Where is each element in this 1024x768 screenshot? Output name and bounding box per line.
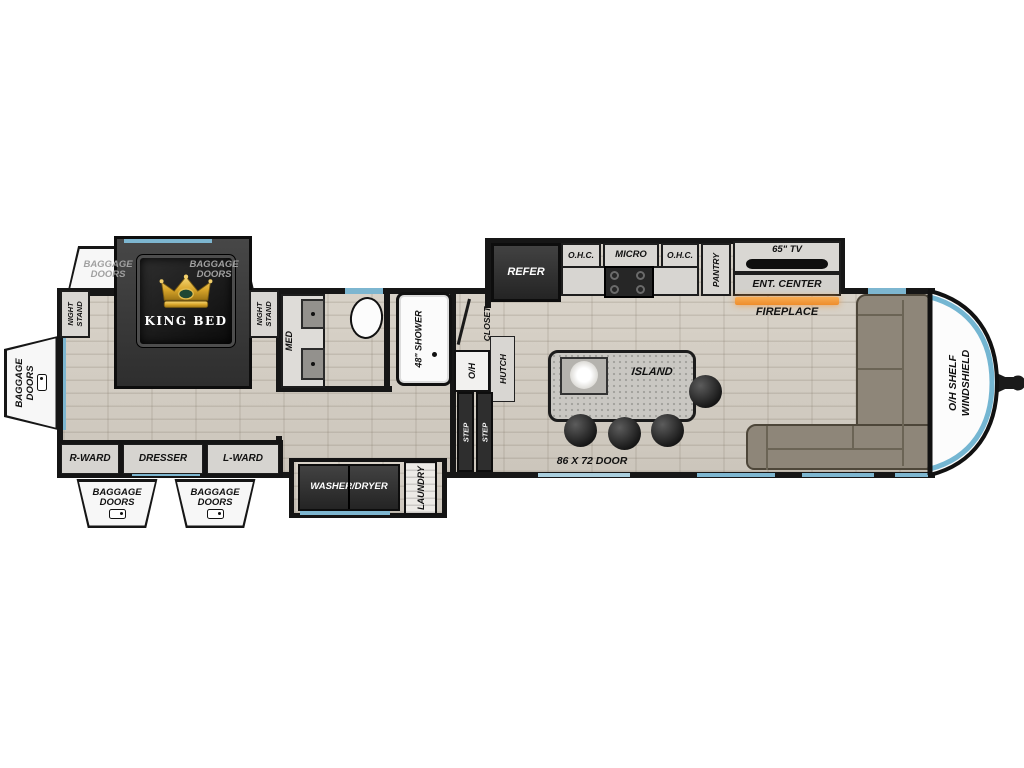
island-sink-basin xyxy=(570,361,598,389)
med-label: MED xyxy=(279,316,299,366)
baggage-doors-panel-side: BAGGAGE DOORS xyxy=(4,333,58,433)
entry-door-opening xyxy=(538,473,630,477)
hutch-label: HUTCH xyxy=(490,336,515,402)
night-stand-left-label: NIGHT STAND xyxy=(60,290,90,338)
baggage-doors-side-label: BAGGAGE DOORS xyxy=(15,352,36,414)
dresser: DRESSER xyxy=(123,444,203,474)
step-2-label: STEP xyxy=(476,392,493,472)
l-ward: L-WARD xyxy=(207,444,279,474)
ohc-left: O.H.C. xyxy=(561,243,601,268)
baggage-doors-bottom-right-label: BAGGAGE DOORS xyxy=(185,488,245,509)
step-1-label: STEP xyxy=(457,392,474,472)
sofa-seam xyxy=(858,314,904,316)
r-ward: R-WARD xyxy=(61,444,119,474)
shower-label: 48" SHOWER xyxy=(396,292,442,386)
fireplace-label: FIREPLACE xyxy=(735,306,839,319)
island-label: ISLAND xyxy=(611,366,692,380)
baggage-door-icon xyxy=(109,509,126,519)
microwave: MICRO xyxy=(603,243,659,268)
tv-label: 65" TV xyxy=(733,244,841,256)
laundry-slide-edge xyxy=(300,511,390,515)
fireplace xyxy=(735,297,839,305)
island-stool xyxy=(689,375,722,408)
sofa-seam xyxy=(852,426,854,448)
entertainment-center: ENT. CENTER xyxy=(733,273,841,296)
window-bottom-3 xyxy=(802,473,874,477)
sofa-seam xyxy=(766,426,768,470)
king-bed-label: KING BED xyxy=(144,315,227,328)
baggage-doors-panel-bottom-right: BAGGAGE DOORS xyxy=(172,479,258,528)
island-stool xyxy=(564,414,597,447)
burner-icon xyxy=(636,285,645,294)
baggage-door-icon xyxy=(207,509,224,519)
washer-dryer-divider xyxy=(348,466,350,509)
baggage-door-icon xyxy=(37,375,47,392)
tv-screen xyxy=(746,259,828,269)
baggage-doors-panel-bottom-left: BAGGAGE DOORS xyxy=(74,479,160,528)
entry-door-label: 86 X 72 DOOR xyxy=(542,455,642,468)
baggage-doors-top-left-label: BAGGAGE DOORS xyxy=(64,251,152,289)
front-shelf-label: O/H SHELF xyxy=(947,354,959,411)
floorplan-canvas: KING BED BAGGAGE DOORS BAGGAGE DOORS NIG… xyxy=(0,0,1024,768)
sofa-seam xyxy=(858,368,904,370)
windshield-label: WINDSHIELD xyxy=(960,349,972,416)
wall-toilet-shower xyxy=(384,292,390,388)
bath-sink-bottom xyxy=(301,348,325,380)
toilet-window xyxy=(345,288,383,294)
laundry-label: LAUNDRY xyxy=(404,461,437,515)
pantry-label: PANTRY xyxy=(701,243,731,296)
window-bottom-2 xyxy=(697,473,775,477)
bed-slide-edge xyxy=(124,239,212,243)
refrigerator: REFER xyxy=(491,243,561,302)
island-stool xyxy=(651,414,684,447)
overhead-label: O/H xyxy=(454,350,490,392)
ohc-right: O.H.C. xyxy=(661,243,699,268)
burner-icon xyxy=(610,285,619,294)
burner-icon xyxy=(636,271,645,280)
night-stand-right-label: NIGHT STAND xyxy=(249,290,279,338)
baggage-doors-top-right-label: BAGGAGE DOORS xyxy=(170,251,258,289)
bath-sink-top xyxy=(301,299,325,329)
burner-icon xyxy=(610,271,619,280)
sofa-seam xyxy=(902,300,904,466)
island-stool xyxy=(608,417,641,450)
sofa-seam xyxy=(766,448,904,450)
baggage-doors-bottom-left-label: BAGGAGE DOORS xyxy=(87,488,147,509)
